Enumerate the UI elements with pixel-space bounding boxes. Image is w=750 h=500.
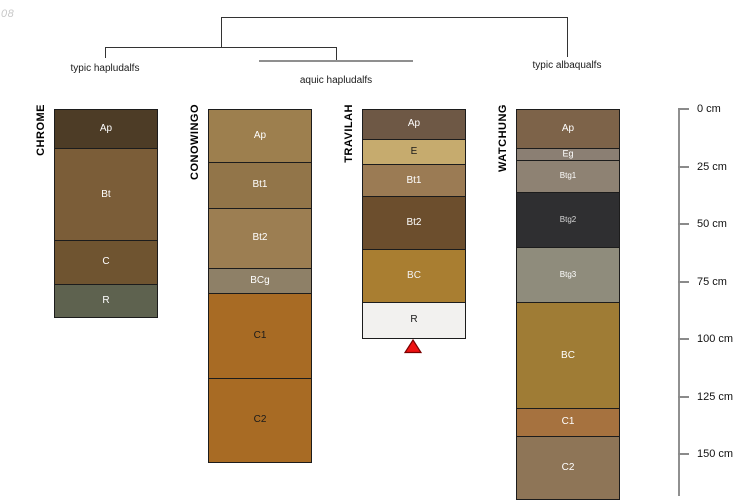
depth-tick-label-100: 100 cm <box>697 333 733 345</box>
depth-tick-label-25: 25 cm <box>697 161 727 173</box>
profile-name-watchung: WATCHUNG <box>497 104 509 172</box>
horizon-label: Ap <box>517 124 619 134</box>
horizon-conowingo-c2: C2 <box>209 379 311 462</box>
figure-canvas: 08 typic hapludalfsaquic hapludalfstypic… <box>0 0 750 500</box>
horizon-conowingo-bcg: BCg <box>209 269 311 294</box>
horizon-label: BC <box>517 351 619 361</box>
classification-label-2: typic albaqualfs <box>533 60 602 71</box>
horizon-label: Bt1 <box>209 180 311 190</box>
dendrogram-hapludalf-crossbar <box>105 47 336 48</box>
depth-tick-0 <box>678 108 689 110</box>
dendrogram-root-drop <box>221 17 222 47</box>
depth-tick-label-150: 150 cm <box>697 448 733 460</box>
horizon-watchung-ap: Ap <box>517 110 619 149</box>
horizon-label: C2 <box>517 463 619 473</box>
profile-column-conowingo: ApBt1Bt2BCgC1C2 <box>208 109 312 463</box>
horizon-conowingo-bt2: Bt2 <box>209 209 311 269</box>
horizon-label: BC <box>363 271 465 281</box>
horizon-travilah-bt2: Bt2 <box>363 197 465 250</box>
horizon-label: Bt2 <box>209 233 311 243</box>
horizon-watchung-c1: C1 <box>517 409 619 437</box>
depth-tick-25 <box>678 166 689 168</box>
horizon-label: Bt2 <box>363 218 465 228</box>
horizon-label: Ap <box>55 124 157 134</box>
dendrogram-leaf-chrome <box>105 47 106 58</box>
horizon-chrome-c: C <box>55 241 157 285</box>
depth-tick-100 <box>678 338 689 340</box>
profile-column-travilah: ApEBt1Bt2BCR <box>362 109 466 339</box>
horizon-label: R <box>363 315 465 325</box>
horizon-watchung-eg: Eg <box>517 149 619 161</box>
depth-tick-125 <box>678 396 689 398</box>
classification-label-1: aquic hapludalfs <box>300 75 372 86</box>
horizon-label: Bt1 <box>363 176 465 186</box>
horizon-watchung-btg1: Btg1 <box>517 161 619 193</box>
depth-tick-label-0: 0 cm <box>697 103 721 115</box>
horizon-watchung-btg3: Btg3 <box>517 248 619 303</box>
horizon-label: Bt <box>55 190 157 200</box>
depth-tick-label-125: 125 cm <box>697 391 733 403</box>
dendrogram-aquic-group-bar <box>259 60 413 62</box>
horizon-travilah-ap: Ap <box>363 110 465 140</box>
horizon-label: Ap <box>363 119 465 129</box>
depth-tick-50 <box>678 223 689 225</box>
horizon-label: Btg2 <box>517 216 619 224</box>
horizon-label: C <box>55 257 157 267</box>
profile-name-chrome: CHROME <box>35 104 47 156</box>
depth-tick-150 <box>678 453 689 455</box>
horizon-chrome-ap: Ap <box>55 110 157 149</box>
depth-tick-label-50: 50 cm <box>697 218 727 230</box>
profile-name-travilah: TRAVILAH <box>343 104 355 163</box>
classification-label-0: typic hapludalfs <box>71 63 140 74</box>
horizon-label: Btg3 <box>517 271 619 279</box>
horizon-travilah-bc: BC <box>363 250 465 303</box>
depth-tick-label-75: 75 cm <box>697 276 727 288</box>
horizon-travilah-r: R <box>363 303 465 338</box>
horizon-conowingo-ap: Ap <box>209 110 311 163</box>
horizon-label: Eg <box>517 150 619 159</box>
horizon-label: Btg1 <box>517 172 619 180</box>
red-triangle-marker <box>404 339 422 354</box>
dendrogram-aquic-drop <box>336 47 337 61</box>
horizon-label: C1 <box>517 417 619 427</box>
horizon-conowingo-c1: C1 <box>209 294 311 379</box>
horizon-watchung-bc: BC <box>517 303 619 409</box>
horizon-watchung-c2: C2 <box>517 437 619 499</box>
dendrogram-leaf-watchung <box>567 17 568 57</box>
profile-column-watchung: ApEgBtg1Btg2Btg3BCC1C2 <box>516 109 620 500</box>
horizon-label: BCg <box>209 276 311 286</box>
dendrogram-root-crossbar <box>221 17 568 18</box>
horizon-chrome-bt: Bt <box>55 149 157 241</box>
horizon-watchung-btg2: Btg2 <box>517 193 619 248</box>
profile-column-chrome: ApBtCR <box>54 109 158 318</box>
depth-tick-75 <box>678 281 689 283</box>
horizon-label: C2 <box>209 415 311 425</box>
horizon-travilah-e: E <box>363 140 465 165</box>
horizon-conowingo-bt1: Bt1 <box>209 163 311 209</box>
horizon-travilah-bt1: Bt1 <box>363 165 465 197</box>
horizon-label: R <box>55 296 157 306</box>
horizon-chrome-r: R <box>55 285 157 317</box>
horizon-label: C1 <box>209 331 311 341</box>
profile-name-conowingo: CONOWINGO <box>189 104 201 180</box>
horizon-label: E <box>363 147 465 157</box>
watermark-text: 08 <box>1 8 14 20</box>
horizon-label: Ap <box>209 131 311 141</box>
